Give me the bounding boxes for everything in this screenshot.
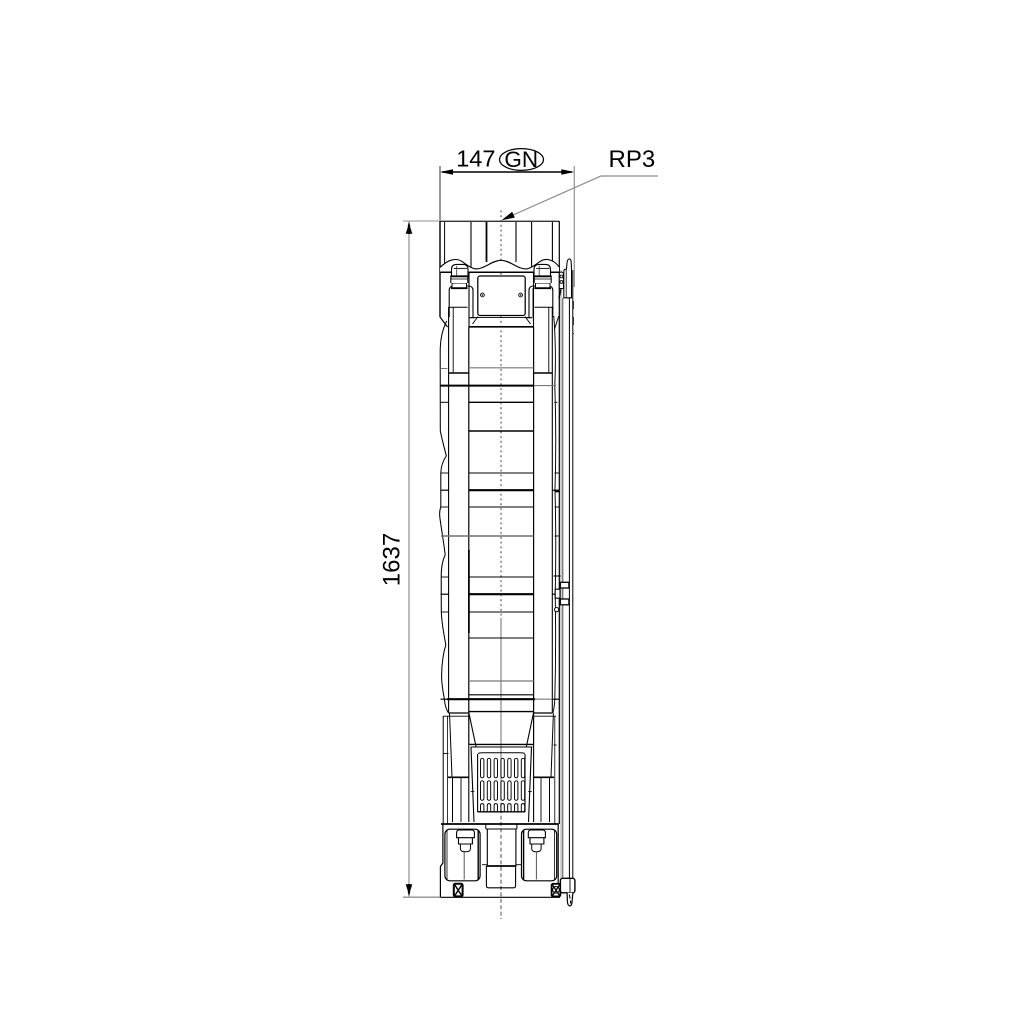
svg-text:GN: GN	[504, 147, 538, 172]
svg-text:147: 147	[456, 146, 495, 172]
svg-text:1637: 1637	[379, 533, 406, 586]
svg-text:RP3: RP3	[609, 146, 656, 173]
